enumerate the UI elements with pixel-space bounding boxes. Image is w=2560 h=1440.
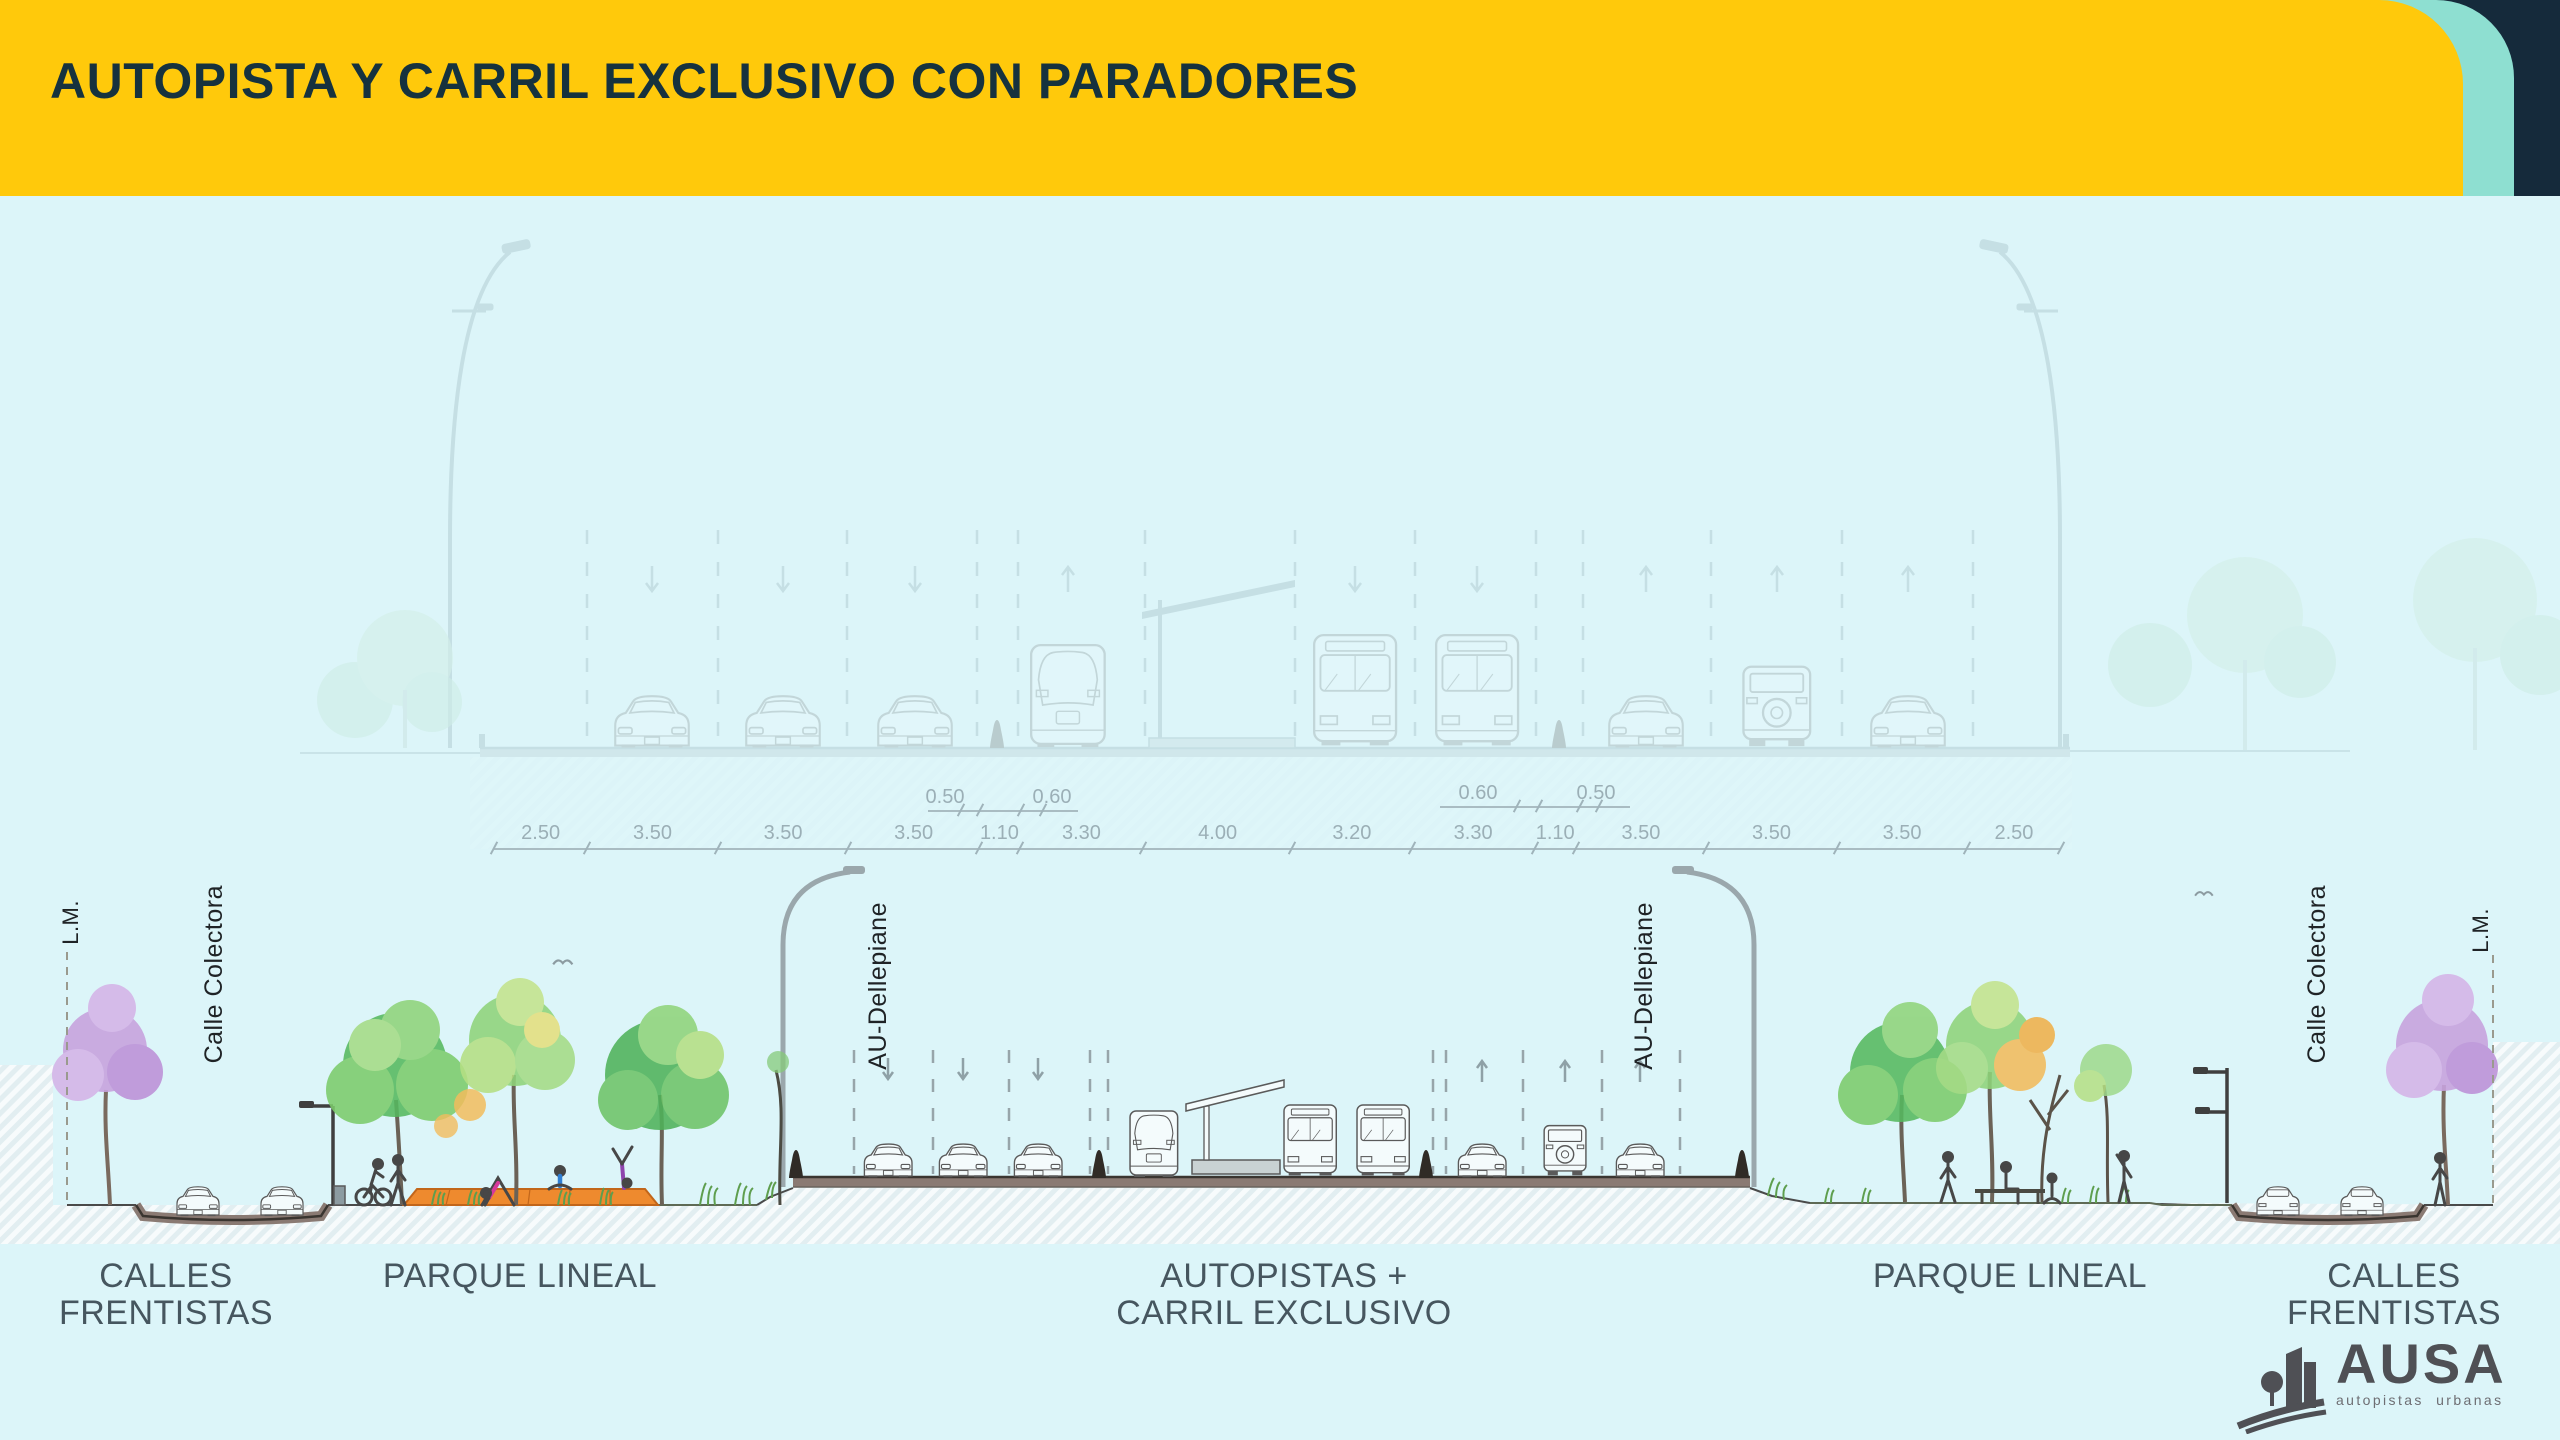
car — [1871, 696, 1945, 747]
highway-label-right: AU-Dellepiane — [1630, 902, 1659, 1070]
earth-hatch-top — [470, 757, 2072, 849]
main-cross-section — [0, 866, 2560, 1244]
person-sitting — [549, 1167, 571, 1190]
car — [939, 1144, 987, 1177]
page-title: AUTOPISTA Y CARRIL EXCLUSIVO CON PARADOR… — [50, 52, 1358, 110]
pedestrian — [391, 1156, 405, 1206]
car — [261, 1187, 303, 1216]
bird-icon — [2195, 892, 2213, 896]
zone-label-line: PARQUE LINEAL — [383, 1258, 657, 1295]
top-cross-section-faded — [300, 239, 2560, 849]
tree-purple-left — [52, 984, 163, 1205]
zone-label-line: FRENTISTAS — [59, 1295, 273, 1332]
median-barrier — [990, 720, 1004, 748]
trash-bin — [334, 1186, 345, 1205]
car — [2341, 1187, 2383, 1216]
barrier — [789, 1150, 803, 1178]
car — [1014, 1144, 1062, 1177]
car — [615, 696, 689, 747]
bus — [1357, 1105, 1409, 1175]
car — [864, 1144, 912, 1177]
car — [1458, 1144, 1506, 1177]
street-light — [450, 239, 531, 748]
cross-section-art — [0, 0, 2560, 1440]
bus — [1314, 635, 1396, 745]
logo-name: AUSA — [2336, 1338, 2507, 1390]
highway-label-left: AU-Dellepiane — [864, 902, 893, 1070]
bus-shelter — [1142, 580, 1295, 748]
zone-label-line: AUTOPISTAS + — [1116, 1258, 1452, 1295]
zone-label-calles-frentistas-left: CALLES FRENTISTAS — [59, 1258, 273, 1332]
highway-light-left — [783, 866, 865, 1187]
person-sitting-ground — [2044, 1174, 2060, 1203]
zone-label-parque-lineal-left: PARQUE LINEAL — [383, 1258, 657, 1295]
ausa-logo: AUSA autopistas urbanas — [2236, 1338, 2507, 1434]
pedestrian — [1941, 1153, 1955, 1203]
bus-shelter — [1186, 1080, 1284, 1174]
bus — [1130, 1111, 1178, 1178]
barrier — [1735, 1150, 1749, 1178]
suv — [1743, 667, 1810, 746]
person-on-bench — [2002, 1163, 2019, 1204]
header: AUTOPISTA Y CARRIL EXCLUSIVO CON PARADOR… — [0, 0, 2560, 196]
zone-label-line: CALLES — [59, 1258, 273, 1295]
car — [1609, 696, 1683, 747]
zone-label-calles-frentistas-right: CALLES FRENTISTAS — [2287, 1258, 2501, 1332]
car — [878, 696, 952, 747]
zone-label-autopistas-carril-exclusivo: AUTOPISTAS + CARRIL EXCLUSIVO — [1116, 1258, 1452, 1332]
ausa-logo-icon — [2236, 1338, 2332, 1434]
street-light-right — [2193, 1067, 2227, 1203]
slide: AUTOPISTA Y CARRIL EXCLUSIVO CON PARADOR… — [0, 0, 2560, 1440]
bus — [1031, 645, 1105, 748]
car — [177, 1187, 219, 1216]
street-label-colectora-right: Calle Colectora — [2303, 885, 2332, 1063]
person-handstand — [613, 1147, 632, 1188]
zone-label-line: PARQUE LINEAL — [1873, 1258, 2147, 1295]
bus — [1436, 635, 1518, 745]
lane-direction-arrows — [883, 1058, 1645, 1082]
highway-roadway — [793, 1177, 1750, 1187]
logo-text: AUSA autopistas urbanas — [2336, 1338, 2507, 1408]
street-light — [1979, 239, 2060, 748]
boundary-label-lm-left: L.M. — [58, 900, 84, 945]
street-light-left — [299, 1101, 333, 1205]
cyclist — [356, 1160, 391, 1206]
header-bar: AUTOPISTA Y CARRIL EXCLUSIVO CON PARADOR… — [0, 0, 2463, 196]
bird-icon — [553, 960, 572, 964]
car — [746, 696, 820, 747]
zone-label-parque-lineal-right: PARQUE LINEAL — [1873, 1258, 2147, 1295]
car — [2257, 1187, 2299, 1216]
street-label-colectora-left: Calle Colectora — [200, 885, 229, 1063]
logo-tagline: autopistas urbanas — [2336, 1392, 2507, 1408]
bus — [1284, 1105, 1336, 1175]
median-barrier — [1552, 720, 1566, 748]
boundary-label-lm-right: L.M. — [2468, 908, 2494, 953]
highway-light-right — [1672, 866, 1754, 1187]
person-standing — [2117, 1152, 2131, 1203]
zone-label-line: CARRIL EXCLUSIVO — [1116, 1295, 1452, 1332]
roadway — [480, 748, 2070, 757]
zone-label-line: CALLES — [2287, 1258, 2501, 1295]
suv — [1544, 1126, 1586, 1176]
zone-label-line: FRENTISTAS — [2287, 1295, 2501, 1332]
park-trees-right — [1838, 981, 2132, 1202]
car — [1616, 1144, 1664, 1177]
barrier — [1092, 1150, 1106, 1178]
barrier — [1419, 1150, 1433, 1178]
